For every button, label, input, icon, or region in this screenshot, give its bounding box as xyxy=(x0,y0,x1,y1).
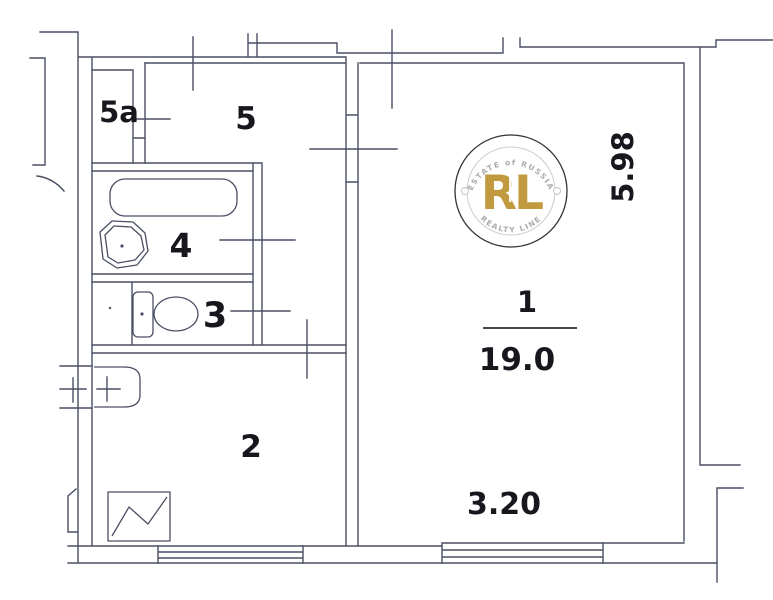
dimension-depth-label: 5.98 xyxy=(606,131,640,203)
watermark-stamp: ESTATE of RUSSIA REALTY LINE RL xyxy=(455,135,567,247)
floor-plan: 5a 5 4 3 2 1 19.0 3.20 5.98 ESTATE of RU… xyxy=(0,0,773,600)
labels-layer: 5a 5 4 3 2 1 19.0 3.20 5.98 xyxy=(99,95,640,522)
cabinet-with-zigzag-symbol xyxy=(108,492,170,541)
walls-layer xyxy=(30,30,773,582)
window-symbol xyxy=(442,543,603,563)
floor-plan-page: 5a 5 4 3 2 1 19.0 3.20 5.98 ESTATE of RU… xyxy=(0,0,773,600)
tick-marks xyxy=(60,240,307,408)
room-5a-label: 5a xyxy=(99,95,139,129)
watermark-monogram: RL xyxy=(481,166,543,221)
fixtures-layer xyxy=(94,179,237,541)
bathtub-symbol xyxy=(110,179,237,216)
hall-basin-symbol xyxy=(94,367,140,407)
dimension-width-label: 3.20 xyxy=(467,487,541,522)
room-2-label: 2 xyxy=(240,429,262,465)
room-1-label: 1 xyxy=(517,285,537,319)
room-3-label: 3 xyxy=(203,296,227,336)
watermark-monogram-slit xyxy=(509,172,512,202)
room-5-label: 5 xyxy=(235,101,257,137)
window-symbol xyxy=(158,546,303,563)
toilet-symbol xyxy=(109,292,198,337)
room-4-label: 4 xyxy=(170,226,193,265)
room-1-area-label: 19.0 xyxy=(479,342,556,378)
wash-basin-symbol xyxy=(100,221,148,268)
